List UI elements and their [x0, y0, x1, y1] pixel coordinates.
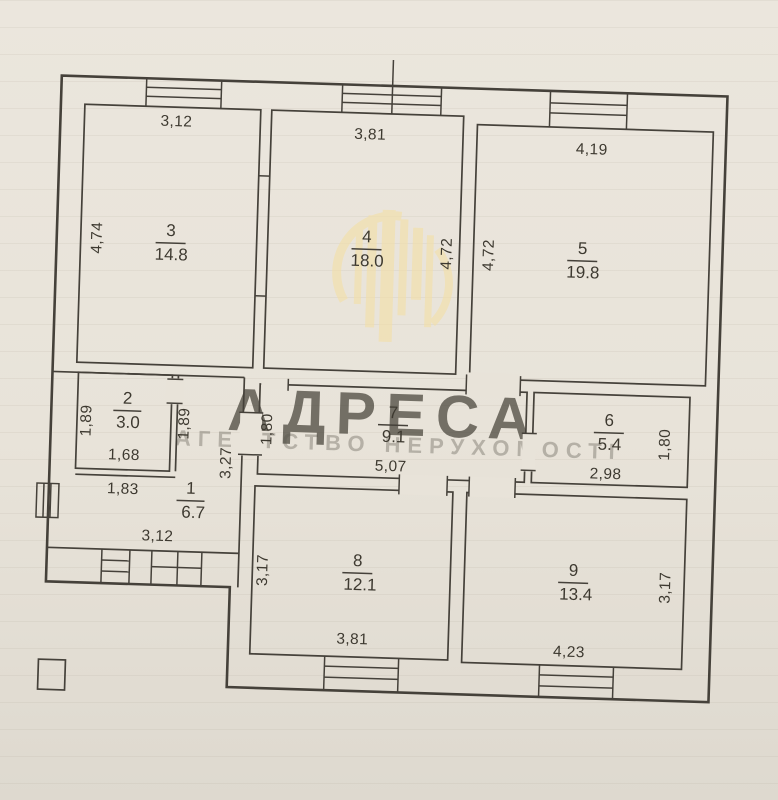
room-2-number: 2 [123, 389, 133, 408]
room-9-label: 9 13.4 [557, 560, 593, 604]
dim-room7-left: 1,80 [258, 413, 276, 445]
dim-room6-right: 1,80 [656, 429, 674, 461]
room-8-label: 8 12.1 [342, 551, 378, 595]
dim-room4-top: 3,81 [354, 126, 386, 144]
room-5-number: 5 [578, 239, 588, 258]
room-9-rect [462, 492, 687, 669]
dim-room2-right: 1,89 [175, 407, 193, 439]
window-room9 [539, 665, 614, 699]
dim-room3-left: 4,74 [88, 222, 106, 254]
room-7-number: 7 [388, 403, 398, 422]
door-jamb [447, 476, 448, 496]
dim-room4-right: 4,72 [438, 238, 456, 270]
window-room5 [549, 91, 627, 129]
room-1-number: 1 [186, 479, 196, 498]
room-6-area: 5.4 [597, 435, 621, 455]
legend-square [38, 659, 66, 690]
lamp-bar [379, 210, 396, 342]
lamp-bar [411, 228, 423, 300]
door-jamb [399, 474, 400, 494]
door-7-8 [399, 474, 448, 495]
window-room8 [324, 656, 399, 692]
dim-room9-right: 3,17 [657, 572, 675, 604]
room-5-area: 19.8 [566, 263, 600, 283]
dim-room5-left: 4,72 [480, 239, 498, 271]
door-jamb [238, 454, 262, 455]
room-1-label: 1 6.7 [176, 478, 206, 522]
dim-room5-top: 4,19 [576, 141, 608, 159]
dim-room2-left: 1,89 [77, 404, 95, 436]
lamp-bar [424, 235, 434, 327]
window-mullion [392, 60, 394, 114]
door-jamb [466, 374, 467, 394]
dim-room1-top: 1,83 [107, 480, 139, 498]
dim-room8-bottom: 3,81 [336, 630, 368, 648]
floor-plan-svg: АДРЕСА АГЕНТСТВО НЕРУХОМОСТІ [0, 0, 778, 800]
room-8-area: 12.1 [343, 575, 377, 595]
room-3-area: 14.8 [154, 245, 188, 265]
room-9-number: 9 [568, 561, 578, 580]
lamp-bar [397, 219, 408, 315]
dim-room6-bottom: 2,98 [589, 465, 621, 483]
door-jamb [167, 379, 183, 380]
door-jamb [239, 412, 263, 413]
wall-left-section-top [53, 371, 245, 377]
door-7-9 [469, 477, 516, 498]
room-6-label: 6 5.4 [593, 410, 624, 454]
door-2-1 [166, 378, 185, 405]
room-6-number: 6 [604, 411, 614, 430]
wall-room1-bottom [47, 547, 239, 553]
door-jamb [520, 376, 521, 396]
room-8-number: 8 [353, 551, 363, 570]
room-9-area: 13.4 [559, 584, 593, 604]
dim-room1-bottom: 3,12 [141, 527, 173, 545]
door-7-4 [261, 380, 288, 389]
room-3-label: 3 14.8 [154, 221, 188, 265]
room-4-number: 4 [362, 227, 372, 246]
door-jamb [469, 477, 470, 497]
room-3-number: 3 [166, 221, 176, 240]
room-4-area: 18.0 [350, 251, 384, 271]
door-7-5 [466, 372, 521, 398]
dim-room2-bottom: 1,68 [108, 446, 140, 464]
dim-room7-bottom: 5,07 [375, 458, 407, 476]
room-5-rect [469, 125, 713, 386]
door-jamb [515, 478, 516, 498]
dim-room9-bottom: 4,23 [553, 643, 585, 661]
door-jamb [167, 403, 183, 404]
room-2-label: 2 3.0 [113, 388, 142, 432]
window-room3 [146, 78, 222, 108]
dim-room8-left: 3,17 [254, 554, 272, 586]
dim-room1-right: 3,27 [217, 447, 235, 479]
entrance-door [151, 551, 202, 587]
watermark-lamp-icon [335, 208, 452, 343]
window-room1 [101, 549, 130, 584]
room-7-area: 9.1 [382, 427, 406, 447]
dim-room3-top: 3,12 [160, 113, 192, 131]
door-7-6 [522, 433, 536, 471]
room-2-area: 3.0 [116, 412, 140, 432]
wall-room2-bottom-outer [75, 474, 175, 477]
room-1-area: 6.7 [181, 503, 205, 523]
room-5-label: 5 19.8 [566, 239, 600, 283]
